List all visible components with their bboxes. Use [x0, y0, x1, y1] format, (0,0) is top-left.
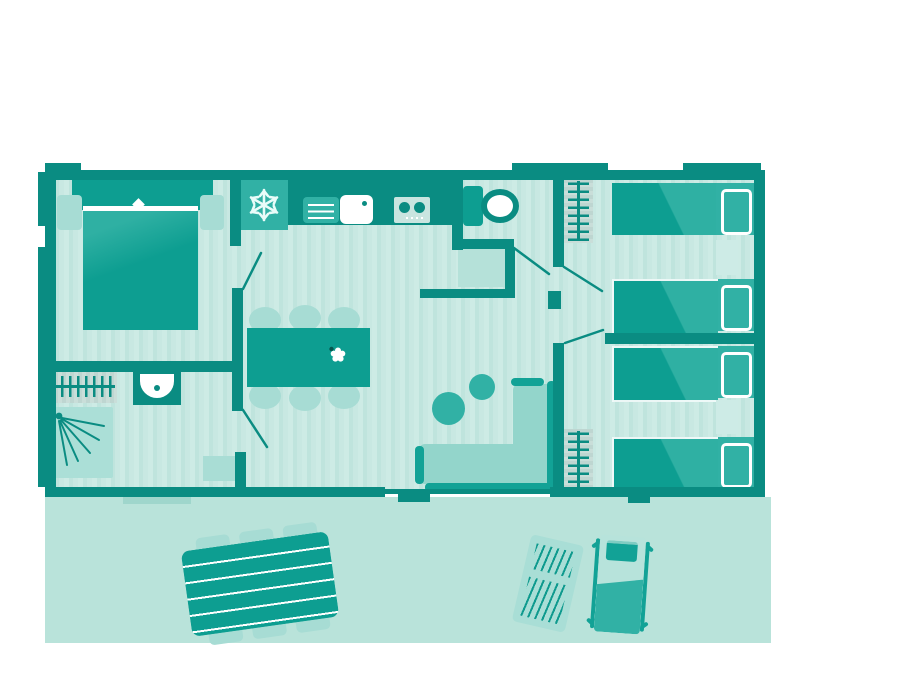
wall-bump-left-upper: [38, 172, 46, 226]
lounger-slats-top: [531, 543, 576, 577]
single-bed-mattress: [612, 279, 718, 335]
wall-exterior-top: [45, 170, 765, 180]
dining-chair: [289, 385, 321, 411]
terrace-area: [45, 497, 771, 643]
lounger-towel: [594, 576, 644, 634]
bed-pillow: [721, 443, 752, 488]
entry-doorstep: [123, 497, 191, 504]
sink-drain-icon: [362, 201, 367, 206]
wall-exterior-left: [45, 170, 56, 497]
bed-pillow: [721, 285, 752, 331]
wall-bump-top-left: [45, 163, 81, 171]
stove-knobs: [406, 217, 424, 219]
bedside-table: [716, 400, 738, 434]
bed-pillow: [721, 352, 752, 398]
sofa-armrest-left: [415, 446, 424, 484]
sun-lounger-padded: [594, 535, 647, 635]
shower-tray: [50, 407, 113, 478]
hanger-ticks: [568, 181, 589, 241]
bedroom2-wardrobe-block: [563, 179, 593, 243]
bedroom3-wardrobe-block: [563, 429, 593, 493]
snowflake-icon: [244, 184, 284, 226]
lounger-body: [594, 535, 647, 635]
lounger-slats-bottom: [520, 577, 568, 625]
sofa-back-top-nub: [511, 378, 544, 386]
bed-pillow: [721, 189, 752, 235]
nightstand-right: [200, 195, 224, 230]
entry-cabinet: [203, 456, 237, 481]
bedside-table: [716, 240, 738, 275]
wall-bedroom-kitchen-mid: [232, 288, 243, 411]
wall-hall-stub: [548, 291, 561, 309]
sofa-seat-horizontal: [419, 444, 547, 484]
pouf-small: [469, 374, 495, 400]
wall-bathroom-divider: [45, 361, 241, 372]
drainer-lines: [308, 202, 334, 219]
wall-tab-bottom-a: [398, 494, 430, 502]
wall-cabinet-bottom: [420, 289, 515, 298]
bathroom-wardrobe-block: [50, 370, 117, 403]
wall-bedroom-kitchen-top: [230, 170, 241, 246]
wall-hall-top: [553, 170, 564, 267]
kitchen-sink: [340, 195, 373, 224]
fridge: [240, 180, 288, 230]
wall-bedrooms-divider: [605, 333, 755, 344]
burner-icon: [399, 202, 410, 213]
wall-exterior-right: [754, 170, 765, 497]
stove: [394, 197, 430, 223]
wall-exterior-bottom-left: [45, 487, 385, 497]
sink-drain-icon: [154, 385, 160, 391]
pouf-large: [432, 392, 465, 425]
hanger-ticks: [568, 431, 589, 491]
toilet-tank: [463, 186, 483, 226]
wall-exterior-bottom-right: [550, 487, 765, 497]
dining-table: [247, 328, 370, 387]
wall-tab-bottom-b: [628, 495, 650, 503]
toilet-bowl: [481, 189, 519, 223]
hanger-ticks: [53, 376, 114, 397]
wall-wc-left: [452, 170, 463, 250]
floor-plan-canvas: [0, 0, 900, 675]
wall-bathroom-stub: [235, 452, 246, 489]
nightstand-left: [57, 195, 82, 230]
flower-icon: [325, 342, 351, 368]
single-bed-mattress: [612, 346, 718, 402]
single-bed-mattress: [612, 437, 718, 492]
single-bed-mattress: [612, 183, 716, 235]
dish-drainer: [303, 197, 339, 223]
master-bed-mattress: [83, 211, 198, 330]
lounger-pillow: [606, 540, 638, 562]
wall-hall-bottom: [553, 343, 564, 493]
wall-bump-top-right: [683, 163, 761, 171]
washbasin-counter: [133, 372, 181, 405]
burner-icon: [414, 202, 425, 213]
shower-spray-icon: [50, 407, 113, 478]
picnic-table: [181, 531, 340, 637]
hall-cabinet: [458, 248, 505, 287]
